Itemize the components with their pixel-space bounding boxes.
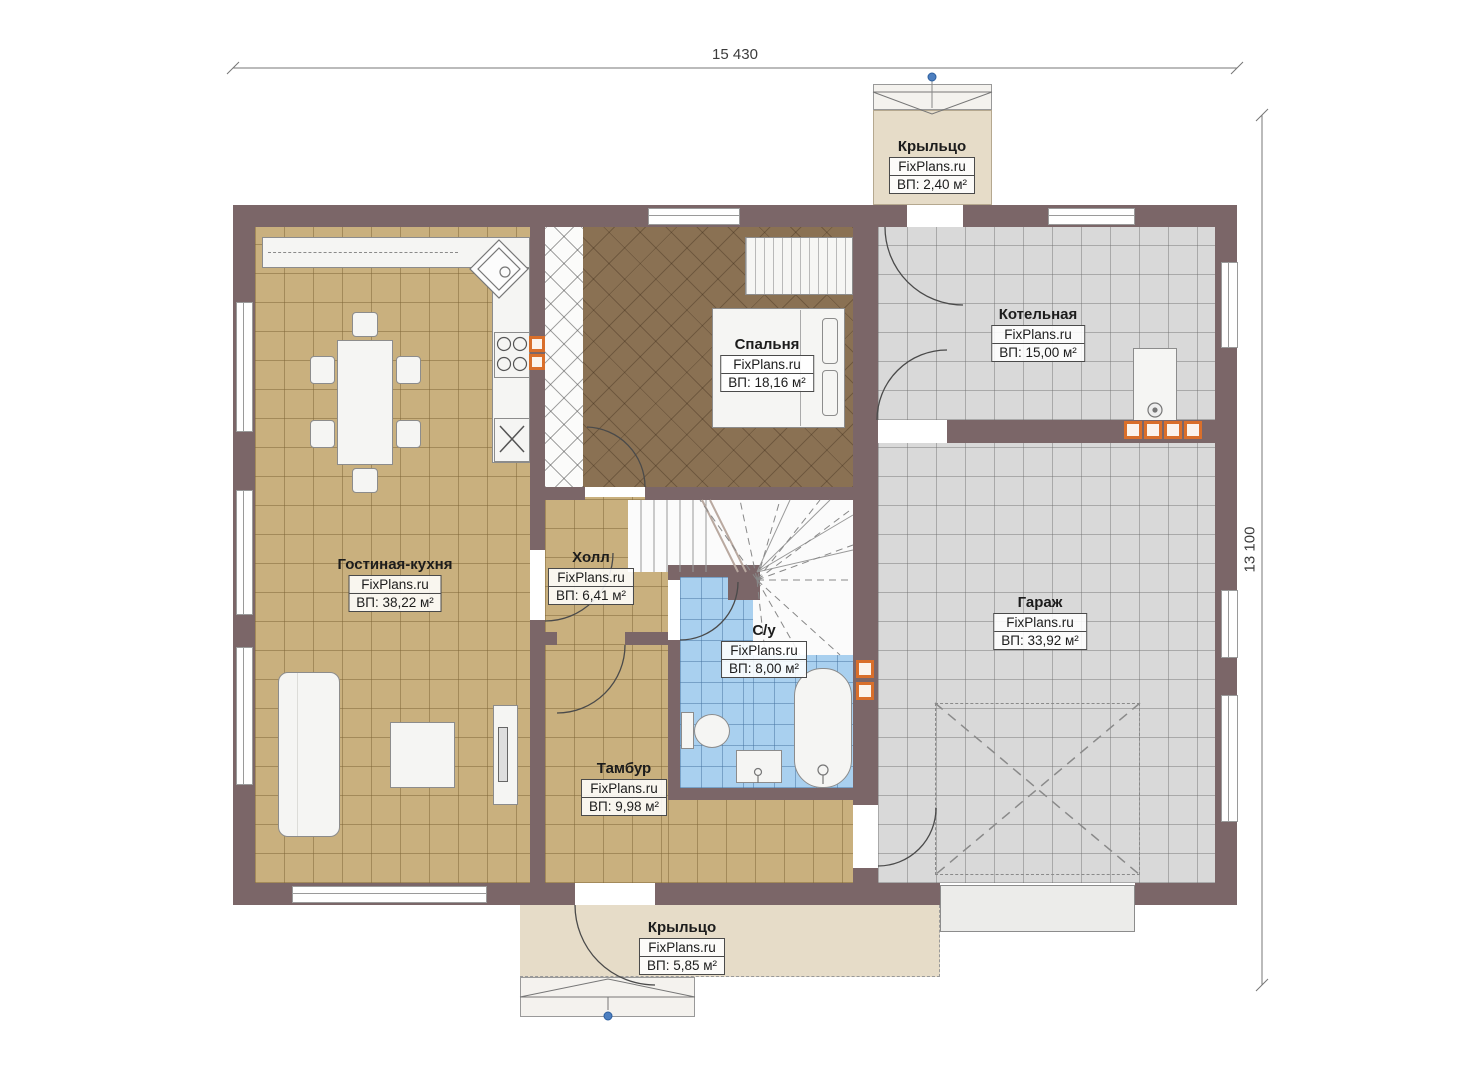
wardrobe-closet-hatch bbox=[545, 227, 583, 487]
stove bbox=[494, 332, 530, 378]
wall-bathroom-left-lower bbox=[668, 640, 680, 800]
room-area: ВП: 9,98 м² bbox=[582, 798, 666, 815]
vent-block bbox=[1124, 421, 1142, 439]
vent-block bbox=[856, 660, 874, 678]
vent-block bbox=[1164, 421, 1182, 439]
porch-bottom-landing bbox=[520, 905, 940, 977]
room-label-bedroom: Спальня FixPlans.ru ВП: 18,16 м² bbox=[720, 336, 814, 392]
room-area: ВП: 6,41 м² bbox=[549, 587, 633, 604]
bed-pillow bbox=[822, 370, 838, 416]
bathtub bbox=[794, 668, 852, 788]
window-right-boiler bbox=[1221, 262, 1238, 348]
porch-top-steps bbox=[873, 84, 992, 110]
dining-chair bbox=[352, 312, 378, 337]
watermark-text: FixPlans.ru bbox=[994, 614, 1086, 632]
wall-living-central-upper bbox=[530, 227, 545, 550]
watermark-text: FixPlans.ru bbox=[722, 642, 806, 660]
room-name: Крыльцо bbox=[889, 138, 975, 155]
wall-bathroom-left-upper bbox=[668, 565, 680, 580]
room-area: ВП: 8,00 м² bbox=[722, 660, 806, 677]
watermark-text: FixPlans.ru bbox=[349, 576, 441, 594]
room-label-bathroom: С/у FixPlans.ru ВП: 8,00 м² bbox=[721, 622, 807, 678]
vestibule-floor-extension bbox=[668, 800, 853, 883]
bedroom-wardrobe bbox=[745, 237, 853, 295]
room-area: ВП: 15,00 м² bbox=[992, 344, 1084, 361]
dining-chair bbox=[352, 468, 378, 493]
watermark-text: FixPlans.ru bbox=[640, 939, 724, 957]
wall-bathroom-bottom bbox=[668, 788, 853, 800]
vent-block bbox=[856, 682, 874, 700]
wall-hall-vestibule-right bbox=[625, 632, 668, 645]
watermark-text: FixPlans.ru bbox=[582, 780, 666, 798]
vent-block bbox=[529, 354, 545, 370]
window-left-3 bbox=[236, 647, 253, 785]
dining-chair bbox=[396, 356, 421, 384]
porch-bottom-steps bbox=[520, 977, 695, 1017]
garage-door-panel bbox=[940, 885, 1135, 932]
wall-central-garage-lower bbox=[853, 868, 878, 883]
room-label-living-kitchen: Гостиная-кухня FixPlans.ru ВП: 38,22 м² bbox=[338, 556, 453, 612]
coffee-table bbox=[390, 722, 455, 788]
watermark-text: FixPlans.ru bbox=[721, 356, 813, 374]
toilet-tank bbox=[681, 712, 694, 749]
watermark-text: FixPlans.ru bbox=[549, 569, 633, 587]
watermark-text: FixPlans.ru bbox=[890, 158, 974, 176]
dining-table bbox=[337, 340, 393, 465]
vent-block bbox=[1184, 421, 1202, 439]
kitchen-upper-cabinet-dashed-line bbox=[268, 252, 458, 253]
door-opening-main-entrance bbox=[575, 883, 655, 905]
stairwell-area bbox=[628, 500, 853, 572]
room-label-boiler-room: Котельная FixPlans.ru ВП: 15,00 м² bbox=[991, 306, 1085, 362]
dining-chair bbox=[310, 420, 335, 448]
room-area: ВП: 38,22 м² bbox=[349, 594, 441, 611]
dimension-width-label: 15 430 bbox=[695, 46, 775, 63]
tv bbox=[498, 727, 508, 782]
window-right-garage-1 bbox=[1221, 590, 1238, 658]
car-parking-space bbox=[935, 703, 1140, 875]
room-label-porch-bottom: Крыльцо FixPlans.ru ВП: 5,85 м² bbox=[639, 919, 725, 975]
room-label-hall: Холл FixPlans.ru ВП: 6,41 м² bbox=[548, 549, 634, 605]
dining-chair bbox=[310, 356, 335, 384]
wall-bedroom-bottom-left bbox=[545, 487, 585, 500]
kitchen-sink-cabinet bbox=[494, 418, 530, 462]
room-name: Спальня bbox=[720, 336, 814, 353]
door-opening-top-porch bbox=[907, 205, 963, 227]
room-name: С/у bbox=[721, 622, 807, 639]
room-area: ВП: 18,16 м² bbox=[721, 374, 813, 391]
wall-living-central-lower bbox=[530, 620, 545, 883]
sofa bbox=[278, 672, 340, 837]
room-area: ВП: 5,85 м² bbox=[640, 957, 724, 974]
room-label-garage: Гараж FixPlans.ru ВП: 33,92 м² bbox=[993, 594, 1087, 650]
floor-plan-canvas: 15 430 13 100 Крыльцо FixPlans.ru ВП: 2,… bbox=[0, 0, 1474, 1080]
wall-bedroom-bottom-right bbox=[645, 487, 853, 500]
room-name: Тамбур bbox=[581, 760, 667, 777]
dimension-height-label: 13 100 bbox=[1242, 510, 1259, 590]
wall-stair-newel-stub bbox=[728, 565, 760, 600]
room-label-porch-top: Крыльцо FixPlans.ru ВП: 2,40 м² bbox=[889, 138, 975, 194]
toilet-bowl bbox=[694, 714, 730, 748]
window-left-1 bbox=[236, 302, 253, 432]
bathroom-sink bbox=[736, 750, 782, 783]
vent-block bbox=[529, 336, 545, 352]
room-name: Крыльцо bbox=[639, 919, 725, 936]
room-name: Гостиная-кухня bbox=[338, 556, 453, 573]
window-right-garage-2 bbox=[1221, 695, 1238, 822]
window-top-bedroom bbox=[648, 208, 740, 225]
room-area: ВП: 33,92 м² bbox=[994, 632, 1086, 649]
wall-central-garage-upper bbox=[853, 227, 878, 805]
bed-pillow bbox=[822, 318, 838, 364]
window-top-boiler bbox=[1048, 208, 1135, 225]
vent-block bbox=[1144, 421, 1162, 439]
room-name: Холл bbox=[548, 549, 634, 566]
watermark-text: FixPlans.ru bbox=[992, 326, 1084, 344]
room-name: Гараж bbox=[993, 594, 1087, 611]
window-bottom-living bbox=[292, 886, 487, 903]
window-left-2 bbox=[236, 490, 253, 615]
room-label-vestibule: Тамбур FixPlans.ru ВП: 9,98 м² bbox=[581, 760, 667, 816]
dining-chair bbox=[396, 420, 421, 448]
room-name: Котельная bbox=[991, 306, 1085, 323]
wall-hall-vestibule-left bbox=[545, 632, 557, 645]
room-area: ВП: 2,40 м² bbox=[890, 176, 974, 193]
